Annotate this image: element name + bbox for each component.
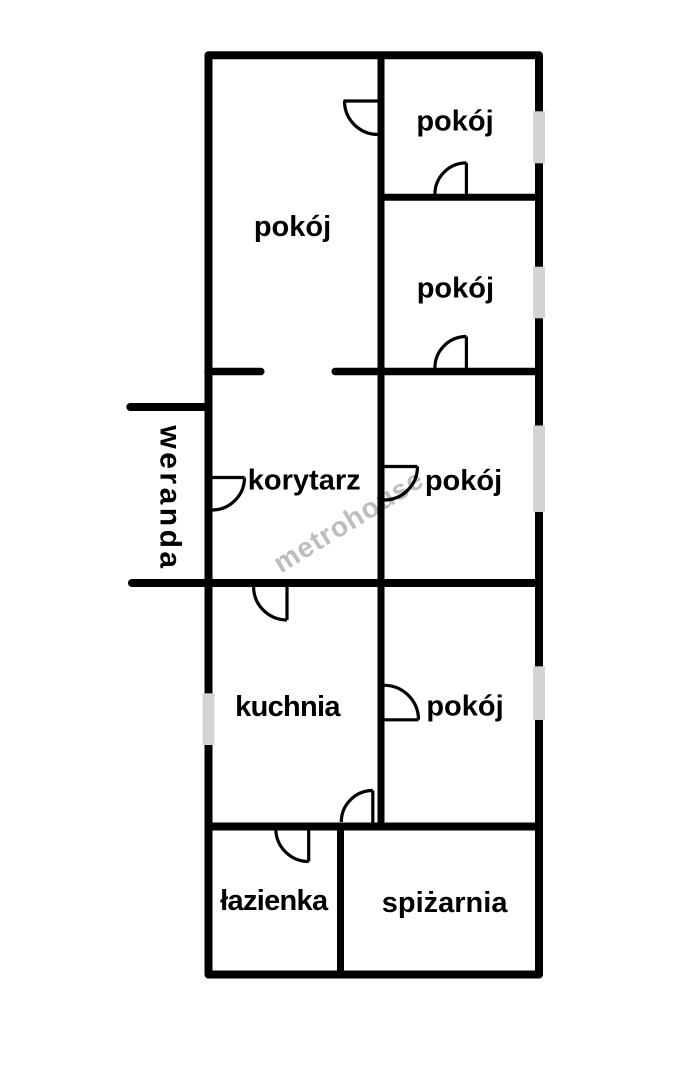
svg-text:pokój: pokój xyxy=(254,211,331,243)
svg-text:łazienka: łazienka xyxy=(220,885,329,917)
svg-text:weranda: weranda xyxy=(154,424,187,571)
svg-text:spiżarnia: spiżarnia xyxy=(382,887,509,919)
svg-text:kuchnia: kuchnia xyxy=(235,691,341,723)
svg-text:pokój: pokój xyxy=(426,691,503,723)
svg-text:pokój: pokój xyxy=(425,465,502,497)
svg-text:korytarz: korytarz xyxy=(248,464,361,496)
svg-text:pokój: pokój xyxy=(417,272,494,304)
svg-text:pokój: pokój xyxy=(416,105,493,137)
